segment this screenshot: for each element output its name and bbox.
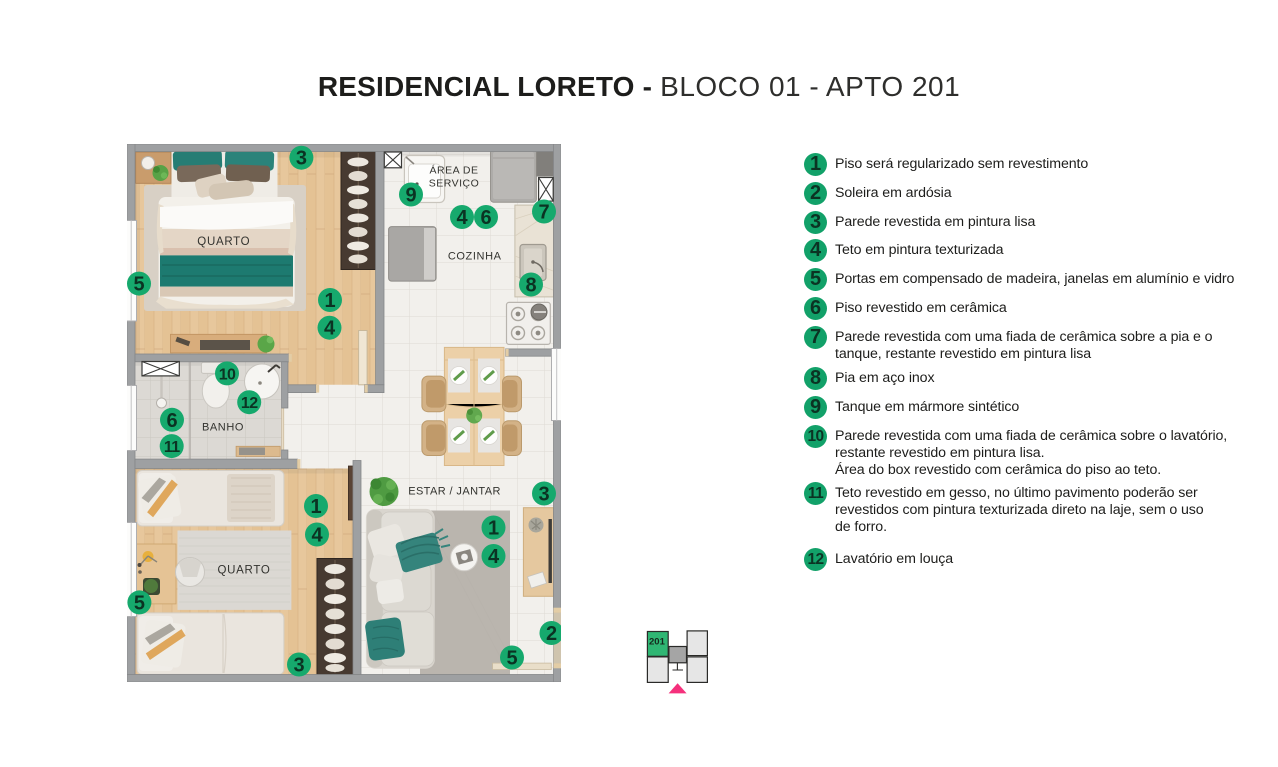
svg-text:4: 4 xyxy=(488,546,500,568)
svg-text:SERVIÇO: SERVIÇO xyxy=(429,177,480,189)
svg-text:4: 4 xyxy=(324,317,336,339)
svg-text:4: 4 xyxy=(311,524,323,546)
svg-text:1: 1 xyxy=(488,517,499,539)
svg-text:QUARTO: QUARTO xyxy=(218,564,271,576)
svg-text:3: 3 xyxy=(293,654,304,676)
svg-text:5: 5 xyxy=(133,273,144,295)
svg-text:1: 1 xyxy=(310,496,321,518)
svg-text:8: 8 xyxy=(525,274,536,296)
svg-text:10: 10 xyxy=(219,366,236,383)
svg-text:QUARTO: QUARTO xyxy=(197,236,250,248)
svg-text:3: 3 xyxy=(296,147,307,169)
svg-text:7: 7 xyxy=(538,201,549,223)
svg-text:5: 5 xyxy=(506,647,517,669)
svg-text:9: 9 xyxy=(405,184,416,206)
svg-text:2: 2 xyxy=(546,623,557,645)
svg-text:4: 4 xyxy=(456,207,468,229)
svg-text:ESTAR / JANTAR: ESTAR / JANTAR xyxy=(408,485,501,497)
svg-text:12: 12 xyxy=(241,395,258,412)
svg-text:201: 201 xyxy=(649,637,666,648)
svg-text:11: 11 xyxy=(164,439,180,456)
svg-text:BANHO: BANHO xyxy=(202,421,244,433)
svg-text:6: 6 xyxy=(166,409,177,431)
svg-text:1: 1 xyxy=(324,290,335,312)
svg-text:3: 3 xyxy=(538,483,549,505)
svg-text:5: 5 xyxy=(134,592,145,614)
svg-text:COZINHA: COZINHA xyxy=(448,250,502,262)
svg-text:ÁREA DE: ÁREA DE xyxy=(429,163,478,176)
svg-text:6: 6 xyxy=(480,207,491,229)
